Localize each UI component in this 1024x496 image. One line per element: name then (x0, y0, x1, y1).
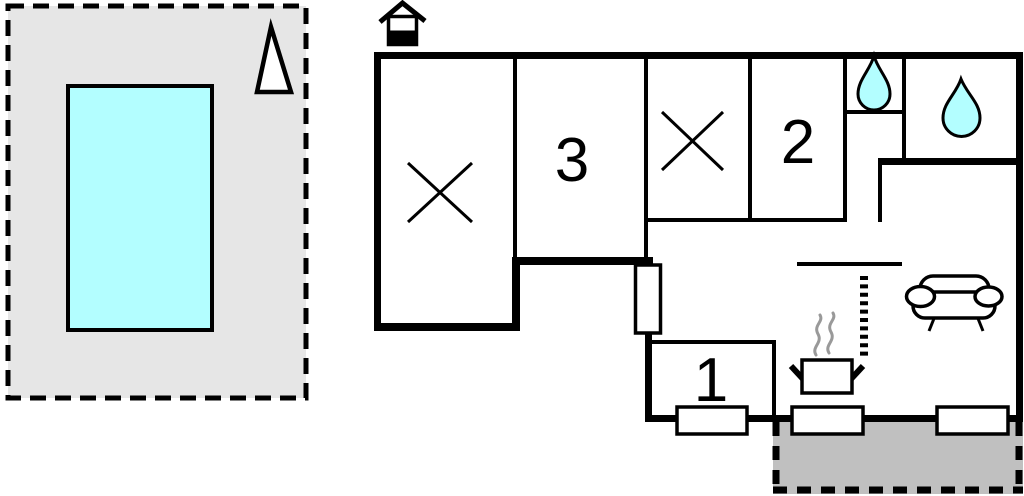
entrance-body-fill (390, 31, 415, 44)
window-icon-living-2 (937, 407, 1008, 434)
wall-bottom-left-room (374, 323, 520, 331)
wall-room3-bottom (512, 257, 653, 265)
wall-top (374, 52, 1023, 59)
floor-plan-drawing: 3 2 1 (0, 0, 1024, 496)
water-drop-icon-small (858, 56, 890, 110)
house-entrance-icon (380, 3, 425, 45)
floor-plan-screenshot: 3 2 1 (0, 0, 1024, 496)
sofa-armrest-left (907, 287, 935, 307)
wall-room2-hall (843, 59, 847, 222)
wall-room1-right (772, 340, 776, 422)
steam-icon (815, 315, 821, 355)
site-plan (8, 6, 306, 398)
sofa-icon (907, 276, 1003, 331)
wall-step-vertical (512, 257, 520, 331)
steam-icon (828, 313, 834, 353)
window-icon-living-1 (792, 407, 863, 434)
swimming-pool (68, 86, 212, 330)
wall-bedrooms-bottom (645, 218, 847, 222)
room-label-3: 3 (555, 126, 589, 195)
wall-right (1016, 52, 1023, 422)
wall-bathroom-bottom (878, 158, 1023, 165)
stove-pot-icon (791, 313, 863, 393)
pot-body (802, 360, 852, 393)
room-label-1: 1 (694, 346, 728, 415)
wall-hall-right (878, 163, 882, 222)
wall-room3-bed2 (644, 59, 648, 259)
kitchen-counter-line (797, 262, 902, 266)
window-icon-left-wall (636, 265, 661, 333)
room-label-2: 2 (781, 108, 815, 177)
bed-cross-icon-1 (408, 163, 472, 222)
sofa-armrest-right (975, 287, 1002, 306)
wall-room1-top (648, 340, 776, 344)
wall-left (374, 52, 381, 331)
water-drop-icon-large (943, 79, 980, 137)
wall-bed2-room2 (748, 59, 752, 222)
wall-bed1-room3 (513, 59, 517, 259)
bed-cross-icon-2 (662, 112, 723, 170)
